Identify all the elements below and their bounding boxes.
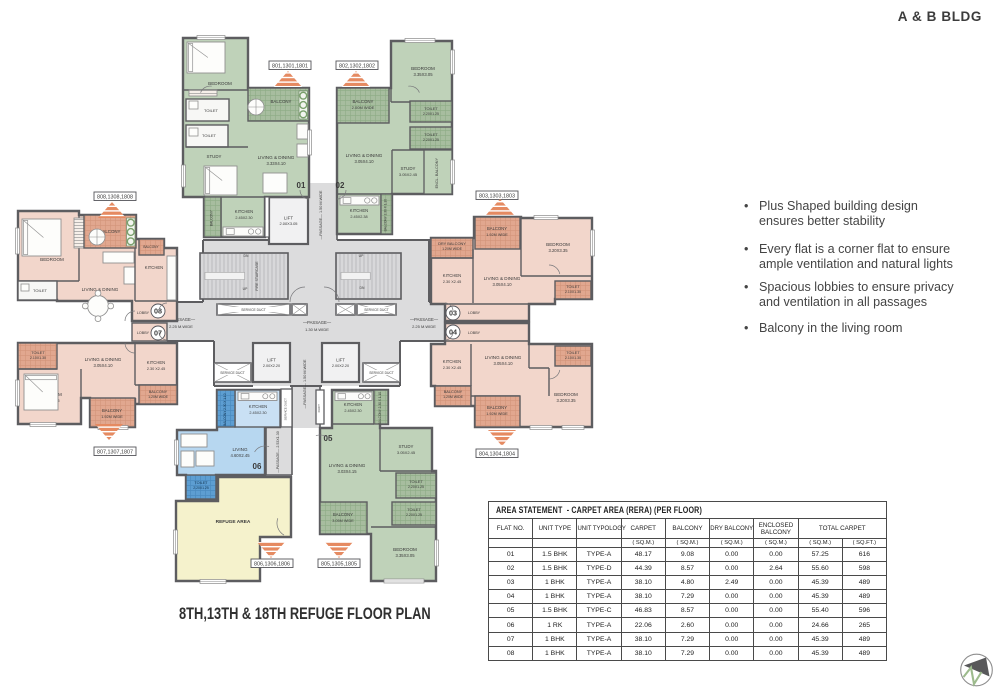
- svg-text:2.45X2.30: 2.45X2.30: [344, 409, 361, 413]
- svg-text:2.20X1.25: 2.20X1.25: [423, 138, 439, 142]
- svg-text:BEDROOM: BEDROOM: [208, 81, 232, 86]
- svg-text:2.10X1.30: 2.10X1.30: [30, 356, 46, 360]
- svg-text:KITCHEN: KITCHEN: [235, 209, 253, 214]
- svg-text:3.05X4.10: 3.05X4.10: [354, 159, 374, 164]
- svg-text:02: 02: [336, 181, 345, 190]
- svg-text:3.05X4.10: 3.05X4.10: [93, 363, 113, 368]
- svg-text:BALCONY: BALCONY: [271, 99, 292, 104]
- svg-text:3.05X2.45: 3.05X2.45: [399, 172, 418, 177]
- svg-text:—PASSAGE— 1.50 M.WIDE: —PASSAGE— 1.50 M.WIDE: [303, 359, 307, 409]
- svg-text:1.30 M.WIDE: 1.30 M.WIDE: [305, 327, 329, 332]
- svg-text:BALCONY: BALCONY: [210, 209, 214, 226]
- svg-text:BALCONY: BALCONY: [143, 245, 159, 249]
- svg-text:806,1306,1806: 806,1306,1806: [254, 561, 290, 567]
- svg-text:2.45X2.38: 2.45X2.38: [350, 215, 367, 219]
- svg-text:2.00X3.05: 2.00X3.05: [279, 221, 298, 226]
- svg-text:BALCONY: BALCONY: [353, 99, 374, 104]
- svg-text:KITCHEN: KITCHEN: [145, 265, 163, 270]
- svg-text:LIVING & DINING: LIVING & DINING: [484, 276, 521, 281]
- svg-text:807,1307,1807: 807,1307,1807: [97, 449, 133, 455]
- svg-text:LIFT: LIFT: [336, 358, 345, 363]
- svg-text:STUDY: STUDY: [207, 154, 222, 159]
- svg-text:3.05X4.10: 3.05X4.10: [493, 361, 513, 366]
- svg-text:FIRE STAIRCASE: FIRE STAIRCASE: [255, 261, 259, 291]
- svg-text:3.05X2.45: 3.05X2.45: [397, 450, 416, 455]
- svg-text:TOILET: TOILET: [407, 507, 421, 512]
- svg-text:01: 01: [297, 181, 306, 190]
- svg-text:06: 06: [253, 462, 262, 471]
- svg-text:KITCHEN: KITCHEN: [350, 208, 368, 213]
- svg-text:UP: UP: [243, 287, 248, 291]
- svg-text:UP: UP: [359, 254, 364, 258]
- svg-text:TOILET: TOILET: [424, 106, 438, 111]
- svg-text:LIVING & DINING: LIVING & DINING: [258, 155, 295, 160]
- svg-text:2.45X2.30: 2.45X2.30: [235, 216, 252, 220]
- svg-text:LOBBY: LOBBY: [137, 331, 150, 335]
- svg-text:BALCONY: BALCONY: [102, 408, 122, 413]
- svg-text:—PASSAGE—: —PASSAGE—: [303, 320, 332, 325]
- svg-text:REFUGE AREA: REFUGE AREA: [216, 519, 251, 525]
- svg-text:TOILET: TOILET: [424, 132, 438, 137]
- svg-text:2.30 X2.45: 2.30 X2.45: [147, 367, 165, 371]
- svg-text:3.20X3.35: 3.20X3.35: [548, 248, 568, 253]
- svg-text:LOBBY: LOBBY: [468, 311, 481, 315]
- svg-text:1.20M WIDE: 1.20M WIDE: [148, 395, 169, 399]
- svg-text:LIVING: LIVING: [232, 447, 247, 452]
- svg-text:DUCT: DUCT: [317, 404, 321, 412]
- svg-text:LIVING & DINING: LIVING & DINING: [329, 463, 366, 468]
- svg-text:1.92M WIDE: 1.92M WIDE: [486, 233, 508, 237]
- svg-text:STUDY: STUDY: [401, 166, 416, 171]
- svg-text:808,1308,1808: 808,1308,1808: [97, 194, 133, 200]
- svg-text:LOBBY: LOBBY: [137, 311, 150, 315]
- svg-text:2.00X2.20: 2.00X2.20: [332, 364, 349, 368]
- svg-text:1.20M WIDE: 1.20M WIDE: [443, 395, 464, 399]
- svg-text:TOILET: TOILET: [566, 350, 580, 355]
- svg-text:3.20X3.35: 3.20X3.35: [556, 398, 576, 403]
- svg-text:3.35X3.05: 3.35X3.05: [395, 553, 415, 558]
- svg-text:BEDROOM: BEDROOM: [554, 392, 578, 397]
- svg-text:3.03X4.15: 3.03X4.15: [337, 469, 357, 474]
- svg-text:2.20X1.25: 2.20X1.25: [408, 485, 424, 489]
- svg-text:803,1303,1803: 803,1303,1803: [479, 193, 515, 199]
- svg-text:SERVICE DUCT: SERVICE DUCT: [220, 371, 245, 375]
- svg-text:ENCL. BALCONY: ENCL. BALCONY: [435, 158, 439, 189]
- svg-text:STUDY: STUDY: [399, 444, 414, 449]
- svg-text:BALCONY: BALCONY: [487, 405, 507, 410]
- svg-text:TOILET: TOILET: [409, 479, 423, 484]
- svg-text:DN: DN: [360, 286, 365, 290]
- svg-text:SERVICE DUCT: SERVICE DUCT: [284, 398, 288, 420]
- svg-text:—PASSAGE— 2.53X1.30: —PASSAGE— 2.53X1.30: [276, 431, 280, 472]
- svg-text:2.20X1.25: 2.20X1.25: [423, 112, 439, 116]
- svg-text:BEDROOM: BEDROOM: [40, 257, 64, 262]
- svg-text:BALCONY 2.30 X 1.10: BALCONY 2.30 X 1.10: [378, 392, 382, 425]
- svg-text:2.30 X2.45: 2.30 X2.45: [443, 280, 461, 284]
- svg-text:KITCHEN: KITCHEN: [249, 404, 267, 409]
- svg-text:2.20X1.25: 2.20X1.25: [193, 486, 209, 490]
- svg-text:TOILET: TOILET: [204, 108, 218, 113]
- svg-text:TOILET: TOILET: [566, 284, 580, 289]
- svg-text:TOILET: TOILET: [194, 481, 208, 485]
- svg-text:BALCONY: BALCONY: [487, 226, 507, 231]
- svg-text:4.60X2.45: 4.60X2.45: [230, 453, 250, 458]
- svg-text:3.05X4.10: 3.05X4.10: [492, 282, 512, 287]
- svg-text:1.92M WIDE: 1.92M WIDE: [101, 415, 123, 419]
- svg-text:2.25 M.WIDE: 2.25 M.WIDE: [169, 324, 193, 329]
- svg-text:LIVING & DINING: LIVING & DINING: [85, 357, 122, 362]
- svg-text:LIVING & DINING: LIVING & DINING: [485, 355, 522, 360]
- svg-text:2.00X2.20: 2.00X2.20: [263, 364, 280, 368]
- svg-text:2.25 M.WIDE: 2.25 M.WIDE: [412, 324, 436, 329]
- svg-text:BALCONY: BALCONY: [149, 389, 168, 394]
- svg-text:801,1301,1801: 801,1301,1801: [272, 63, 308, 69]
- svg-text:07: 07: [154, 329, 162, 338]
- svg-text:LIFT: LIFT: [267, 358, 276, 363]
- svg-text:3.33X4.10: 3.33X4.10: [266, 161, 286, 166]
- svg-text:2.20X1.25: 2.20X1.25: [406, 513, 422, 517]
- svg-text:KITCHEN: KITCHEN: [443, 359, 461, 364]
- svg-text:BEDROOM: BEDROOM: [546, 242, 570, 247]
- svg-text:BEDROOM: BEDROOM: [411, 66, 435, 71]
- svg-text:805,1305,1805: 805,1305,1805: [321, 561, 357, 567]
- svg-text:BALCONY 2.30 X 1.10: BALCONY 2.30 X 1.10: [384, 199, 388, 232]
- svg-text:BALCONY: BALCONY: [444, 389, 463, 394]
- svg-text:2.10X1.30: 2.10X1.30: [565, 356, 581, 360]
- svg-text:2.30 X2.45: 2.30 X2.45: [443, 366, 461, 370]
- svg-text:SERVICE DUCT: SERVICE DUCT: [364, 308, 389, 312]
- svg-text:BEDROOM: BEDROOM: [393, 547, 417, 552]
- svg-text:1.20M WIDE: 1.20M WIDE: [442, 247, 463, 251]
- svg-text:LOBBY: LOBBY: [468, 331, 481, 335]
- svg-text:2.00M WIDE: 2.00M WIDE: [352, 105, 375, 110]
- svg-text:—PASSAGE—: —PASSAGE—: [410, 317, 439, 322]
- svg-text:—PASSAGE— 1.50 M.WIDE: —PASSAGE— 1.50 M.WIDE: [319, 190, 323, 240]
- svg-text:KITCHEN: KITCHEN: [443, 273, 461, 278]
- svg-text:TOILET: TOILET: [31, 350, 45, 355]
- svg-text:08: 08: [154, 307, 162, 316]
- svg-text:DN: DN: [244, 254, 249, 258]
- svg-text:BALCONY 2.30 X 1.10: BALCONY 2.30 X 1.10: [223, 393, 227, 426]
- svg-text:1.92M WIDE: 1.92M WIDE: [486, 412, 508, 416]
- svg-text:LIVING & DINING: LIVING & DINING: [346, 153, 383, 158]
- svg-text:BALCONY: BALCONY: [333, 512, 353, 517]
- svg-text:TOILET: TOILET: [202, 133, 216, 138]
- svg-text:3.35X3.05: 3.35X3.05: [413, 72, 433, 77]
- svg-text:KITCHEN: KITCHEN: [147, 360, 165, 365]
- svg-text:DRY BALCONY: DRY BALCONY: [438, 241, 466, 246]
- svg-text:2.10X1.30: 2.10X1.30: [565, 290, 581, 294]
- svg-text:TOILET: TOILET: [33, 288, 47, 293]
- svg-text:SERVICE DUCT: SERVICE DUCT: [241, 308, 266, 312]
- svg-text:2.45X2.30: 2.45X2.30: [249, 411, 266, 415]
- svg-text:804,1304,1804: 804,1304,1804: [479, 451, 515, 457]
- svg-text:3.05M WIDE: 3.05M WIDE: [332, 519, 354, 523]
- svg-text:SERVICE DUCT: SERVICE DUCT: [369, 371, 394, 375]
- svg-text:KITCHEN: KITCHEN: [344, 402, 362, 407]
- svg-text:LIFT: LIFT: [284, 216, 293, 221]
- svg-text:802,1302,1802: 802,1302,1802: [339, 63, 375, 69]
